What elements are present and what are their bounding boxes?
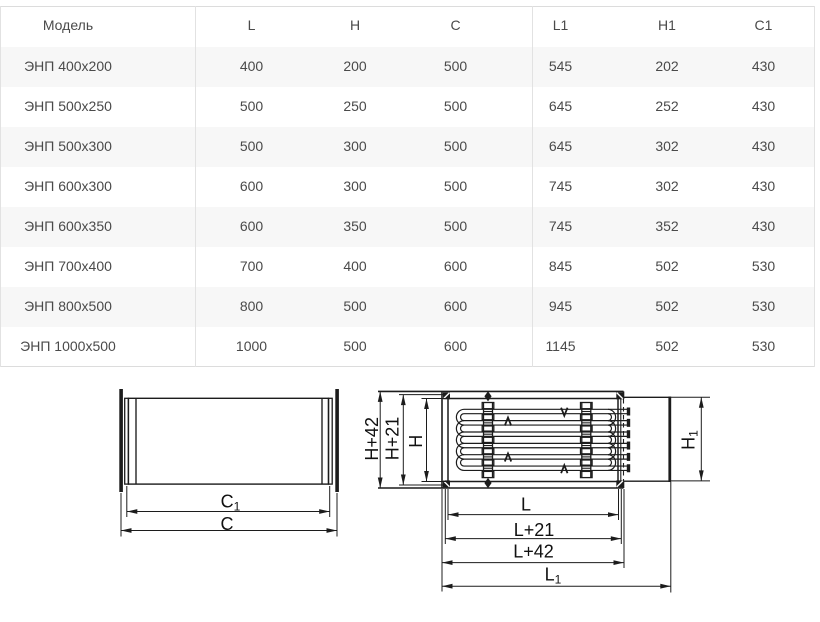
svg-text:H1: H1 <box>679 430 701 450</box>
svg-text:C: C <box>221 514 234 534</box>
svg-text:L+42: L+42 <box>513 542 554 562</box>
svg-text:C1: C1 <box>221 492 241 514</box>
svg-text:H: H <box>406 435 426 448</box>
svg-text:L: L <box>521 495 531 515</box>
svg-text:L+21: L+21 <box>514 520 555 540</box>
svg-text:H+21: H+21 <box>383 417 403 461</box>
svg-text:H+42: H+42 <box>362 417 382 461</box>
svg-text:L1: L1 <box>545 565 562 587</box>
